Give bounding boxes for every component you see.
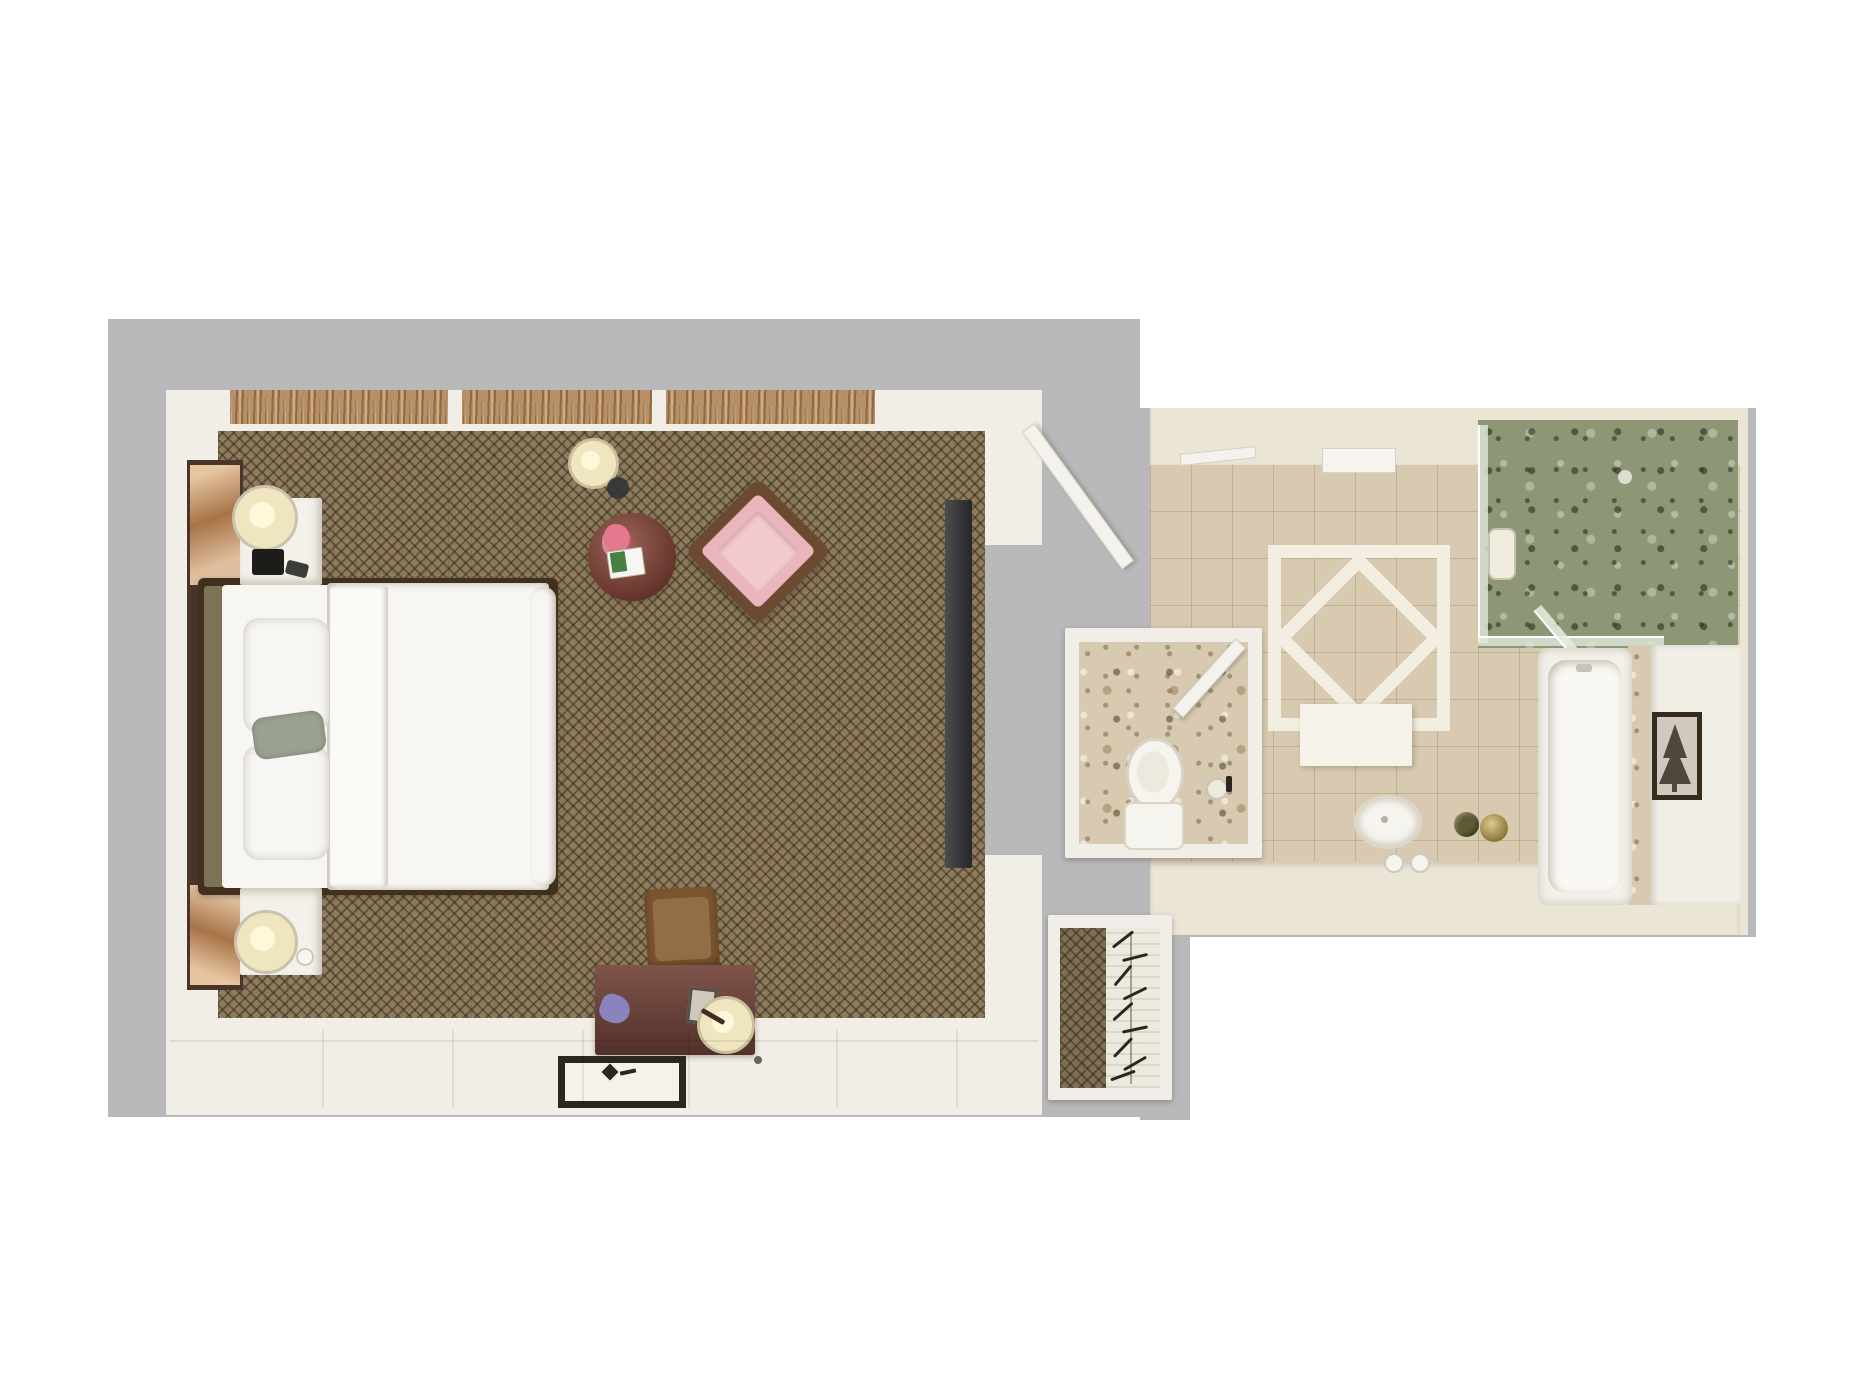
bed-foot-roll (530, 587, 556, 886)
toilet-paper-roll (1206, 778, 1228, 800)
bed-pillow-lower (243, 745, 329, 860)
bathtub-basin (1548, 660, 1622, 893)
soap-dish-right (1410, 853, 1430, 873)
lower-lamp-glow (250, 926, 275, 951)
closet-rod (1130, 932, 1132, 1084)
toilet-seat (1137, 751, 1169, 793)
shower-enclosure (1478, 420, 1738, 648)
tub-faucet (1576, 664, 1592, 672)
window-shade-band (230, 390, 875, 428)
window-sill (218, 424, 985, 431)
floor-lamp-glow (581, 451, 600, 470)
vanity-sink (1354, 795, 1422, 849)
entry-door-handle (754, 1056, 762, 1064)
lower-nightstand-cup (296, 948, 314, 966)
shower-glass-front (1478, 425, 1488, 643)
bed-headboard-panel (204, 586, 224, 887)
pine-tree-bottom (1659, 746, 1691, 784)
entry-mat (558, 1056, 686, 1108)
shower-niche (1488, 528, 1516, 580)
floor-lamp-base (607, 477, 629, 499)
shower-head (1618, 470, 1632, 484)
pine-tree-trunk (1672, 782, 1677, 792)
vanity-rug (1300, 704, 1412, 766)
corridor-opening (985, 545, 1042, 855)
wall-light-fixture (1322, 448, 1396, 473)
sink-drain (1381, 816, 1388, 823)
plant-pot (1454, 812, 1479, 837)
bottom-wall-groove (170, 1040, 1038, 1042)
bed-duvet-fold (330, 586, 388, 887)
toilet-tank (1124, 802, 1184, 850)
upper-nightstand-clock (252, 549, 284, 575)
floorplan-render (0, 0, 1867, 1400)
artwork-panel-lower (190, 885, 240, 985)
paper-holder (1226, 776, 1232, 792)
wall-tv (945, 500, 972, 868)
gold-tray (1480, 814, 1508, 842)
green-book-cover (610, 551, 628, 573)
upper-lamp-glow (249, 502, 275, 528)
desk-chair-seat (652, 897, 711, 962)
soap-dish-left (1384, 853, 1404, 873)
